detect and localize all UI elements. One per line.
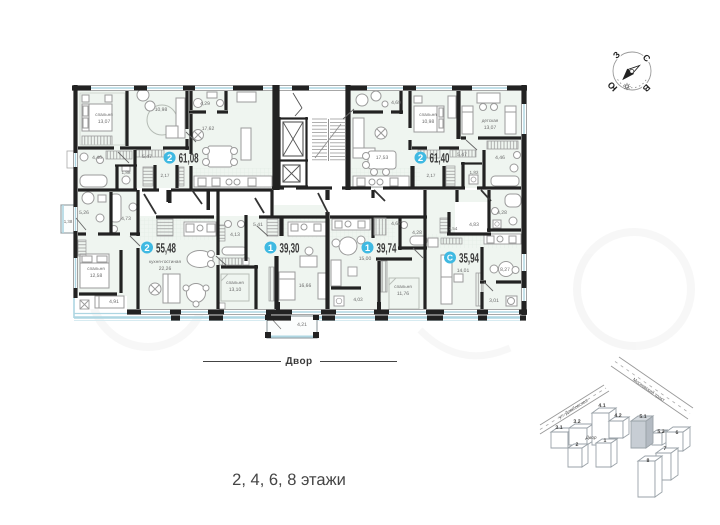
svg-text:Двор: Двор: [584, 435, 596, 441]
svg-text:2: 2: [144, 243, 149, 254]
svg-text:61,08: 61,08: [179, 151, 199, 166]
svg-text:39,30: 39,30: [280, 241, 300, 256]
svg-text:4.2: 4.2: [614, 413, 621, 419]
svg-text:6: 6: [676, 430, 679, 436]
svg-text:1,38: 1,38: [64, 219, 73, 224]
svg-text:39,74: 39,74: [377, 241, 397, 256]
svg-text:кухня-гостиная: кухня-гостиная: [149, 259, 181, 264]
svg-text:8,27: 8,27: [500, 267, 510, 273]
svg-text:13,07: 13,07: [484, 125, 497, 131]
svg-text:4,13: 4,13: [230, 232, 240, 238]
svg-text:3,01: 3,01: [489, 298, 499, 304]
svg-text:4,83: 4,83: [469, 222, 479, 228]
svg-text:4,21: 4,21: [297, 322, 307, 328]
svg-text:22,26: 22,26: [159, 266, 172, 272]
svg-text:10,98: 10,98: [422, 119, 435, 125]
svg-text:4,69: 4,69: [391, 100, 401, 106]
svg-text:спальня: спальня: [419, 112, 437, 117]
svg-text:4,67: 4,67: [391, 221, 401, 227]
svg-text:1,83: 1,83: [470, 170, 479, 175]
svg-text:4,46: 4,46: [495, 155, 505, 161]
svg-text:1: 1: [268, 243, 274, 254]
svg-text:1,88: 1,88: [122, 170, 131, 175]
svg-text:55,48: 55,48: [156, 241, 176, 256]
svg-text:1,54: 1,54: [449, 226, 458, 231]
svg-text:35,94: 35,94: [459, 251, 479, 266]
svg-text:13,07: 13,07: [98, 119, 111, 125]
svg-text:2: 2: [576, 442, 579, 448]
svg-text:4,73: 4,73: [121, 216, 131, 222]
svg-text:спальня: спальня: [394, 284, 412, 289]
svg-text:4,03: 4,03: [353, 297, 363, 303]
svg-text:спальня: спальня: [226, 280, 244, 285]
svg-text:10,98: 10,98: [155, 107, 168, 113]
svg-text:17,62: 17,62: [202, 126, 215, 132]
svg-text:11,76: 11,76: [397, 291, 409, 297]
svg-text:4,46: 4,46: [92, 155, 102, 161]
svg-text:8: 8: [647, 458, 650, 464]
svg-text:14,01: 14,01: [457, 268, 470, 274]
svg-text:5,47: 5,47: [457, 152, 467, 158]
svg-text:2,17: 2,17: [161, 173, 170, 178]
svg-text:16,66: 16,66: [299, 283, 312, 289]
svg-text:2: 2: [418, 153, 423, 164]
svg-text:3.1: 3.1: [555, 425, 562, 431]
svg-text:5.1: 5.1: [639, 414, 646, 420]
svg-text:2, 4, 6, 8 этажи: 2, 4, 6, 8 этажи: [232, 471, 346, 489]
svg-text:5,26: 5,26: [79, 210, 89, 216]
svg-text:4,29: 4,29: [200, 101, 210, 107]
svg-text:детская: детская: [482, 118, 499, 123]
svg-text:4,91: 4,91: [109, 299, 119, 305]
svg-text:4.1: 4.1: [598, 403, 605, 409]
svg-text:4,28: 4,28: [412, 230, 422, 236]
svg-text:Двор: Двор: [286, 356, 313, 367]
svg-text:5.2: 5.2: [657, 429, 664, 435]
svg-text:7: 7: [664, 446, 667, 452]
svg-text:4,28: 4,28: [497, 210, 507, 216]
svg-text:2,17: 2,17: [427, 173, 436, 178]
svg-text:спальня: спальня: [95, 112, 113, 117]
svg-text:спальня: спальня: [87, 266, 105, 271]
svg-text:1: 1: [604, 438, 607, 444]
svg-text:17,53: 17,53: [376, 155, 389, 161]
svg-text:С: С: [447, 253, 453, 263]
svg-text:2: 2: [167, 153, 172, 164]
svg-text:61,40: 61,40: [430, 151, 450, 166]
svg-text:15,00: 15,00: [359, 256, 372, 262]
svg-text:1: 1: [365, 243, 371, 254]
svg-text:5,41: 5,41: [253, 222, 263, 228]
svg-text:3.2: 3.2: [573, 419, 580, 425]
svg-text:5,47: 5,47: [142, 154, 152, 160]
svg-text:13,10: 13,10: [229, 287, 242, 293]
svg-text:12,58: 12,58: [90, 273, 103, 279]
